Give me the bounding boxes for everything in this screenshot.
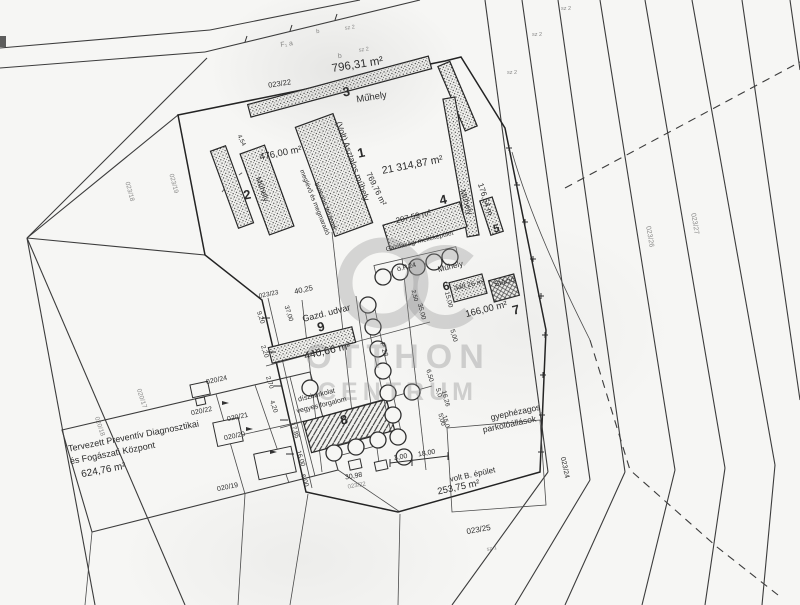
map-label-bldg-3-name: Műhely — [356, 90, 388, 106]
house-small — [195, 397, 205, 406]
west-boundary-ticks — [262, 318, 294, 454]
map-label-dim-454: 4,54 — [236, 134, 247, 148]
map-label-code-sz2-top: sz 2 — [344, 24, 355, 31]
utility-box-2 — [374, 460, 388, 471]
map-label-parcel-023-23: 023/23 — [258, 289, 279, 300]
map-label-dim-1785: 17,85 — [289, 422, 301, 440]
map-label-parcel-023-26: 023/26 — [644, 226, 655, 248]
flag-symbol — [222, 401, 229, 405]
map-label-parcel-023-25: 023/25 — [466, 523, 492, 536]
fence-ticks-north — [245, 14, 337, 42]
tree-symbol — [390, 429, 406, 445]
faint-curve-east — [512, 152, 590, 340]
tree-symbol — [326, 445, 342, 461]
tree-symbol — [385, 407, 401, 423]
map-label-parcel-020-19: 020/19 — [216, 482, 239, 493]
tree-symbol — [348, 439, 364, 455]
dashed-line-ne — [565, 62, 800, 188]
map-label-parcel-023-19: 023/19 — [167, 173, 179, 194]
map-label-dim-1800: 18,00 — [417, 449, 436, 459]
map-label-code-sz2-r1: sz 2 — [561, 6, 571, 12]
map-label-parcel-020-24: 020/24 — [205, 375, 228, 386]
map-label-code-b-top: b — [316, 29, 321, 35]
map-label-parcel-020-18: 020/18 — [93, 416, 106, 437]
map-label-bldg-9-no: 9 — [316, 318, 327, 334]
tree-symbol — [370, 432, 386, 448]
map-label-parcel-023-22b: 023/22 — [347, 481, 367, 490]
map-label-area-21314: 21 314,87 m² — [381, 153, 445, 177]
dashed-boundary-lines — [512, 62, 800, 595]
scan-edge-mark — [0, 36, 6, 47]
tree-symbol — [375, 269, 391, 285]
map-label-code-b: b — [337, 53, 342, 60]
map-label-parcel-023-24: 023/24 — [559, 456, 570, 479]
former-building-outline — [447, 420, 546, 512]
map-label-area-166: 166,00 m² — [464, 299, 508, 320]
map-label-dim-3700: 37,00 — [283, 305, 295, 323]
map-label-code-sz2-r2: sz 2 — [532, 32, 542, 38]
map-label-dim-420: 4,20 — [268, 399, 279, 414]
map-label-parcel-020-22: 020/22 — [190, 406, 213, 417]
utility-box-1 — [348, 459, 362, 470]
site-plan-page: OTTHON CENTRUM F₁ absz 2bsz 2796,31 m²02… — [0, 0, 800, 605]
flag-symbol — [246, 427, 253, 431]
map-label-bldg-4-no: 4 — [438, 191, 449, 207]
map-label-code-sz2-r3: sz 2 — [507, 70, 517, 76]
map-label-parcel-020-17: 020/17 — [135, 388, 148, 409]
map-label-area-624: 624,76 m² — [80, 461, 127, 481]
map-label-dim-3098: 30,98 — [344, 472, 363, 482]
map-label-dim-150: 15,0 — [440, 415, 450, 429]
map-label-dim-1600: 16,00 — [295, 450, 307, 468]
map-label-parcel-023-22: 023/22 — [268, 77, 292, 89]
map-label-bldg-7-no: 7 — [511, 301, 522, 317]
map-label-parcel-023-18: 023/18 — [123, 181, 135, 202]
map-label-code-sz2: sz 2 — [358, 46, 369, 53]
map-label-yard-name: Gazd. udvar — [301, 302, 351, 324]
house-020-19 — [254, 446, 297, 479]
map-label-code-f-a: F₁ a — [280, 40, 293, 49]
map-label-parcel-023-27: 023/27 — [689, 213, 700, 235]
site-plan-drawing: OTTHON CENTRUM F₁ absz 2bsz 2796,31 m²02… — [0, 0, 800, 605]
map-label-dim-4025: 40,25 — [293, 283, 313, 296]
map-label-dim-220: 2,20 — [259, 344, 270, 359]
map-label-dim-600: 6,00 — [299, 473, 310, 488]
dashed-line-se — [590, 340, 778, 595]
map-label-code-sz1: sz 1 — [486, 545, 497, 553]
